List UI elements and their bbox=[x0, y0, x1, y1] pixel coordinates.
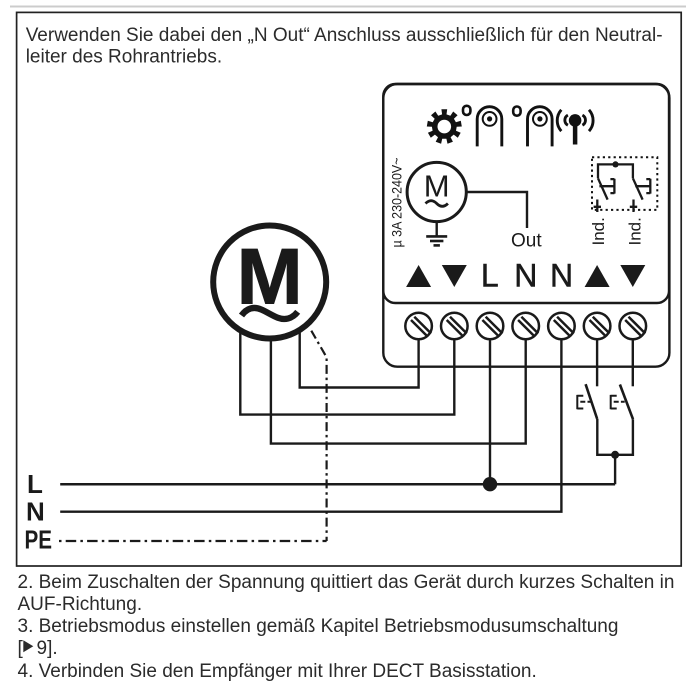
svg-text:leiter des Rohrantriebs.: leiter des Rohrantriebs. bbox=[26, 47, 222, 68]
svg-text:N: N bbox=[514, 258, 537, 294]
svg-text:N: N bbox=[550, 258, 573, 294]
svg-text:4. Verbinden Sie den Empfänger: 4. Verbinden Sie den Empfänger mit Ihrer… bbox=[18, 661, 537, 682]
svg-text:L: L bbox=[27, 469, 43, 499]
svg-text:Out: Out bbox=[511, 230, 542, 251]
svg-text:N: N bbox=[26, 497, 45, 527]
svg-text:3. Betriebsmodus einstellen ge: 3. Betriebsmodus einstellen gemäß Kapite… bbox=[18, 616, 619, 637]
svg-text:PE: PE bbox=[25, 525, 53, 555]
svg-text:L: L bbox=[481, 258, 499, 294]
svg-text:2. Beim Zuschalten der Spannun: 2. Beim Zuschalten der Spannung quittier… bbox=[18, 572, 675, 593]
svg-text:AUF-Richtung.: AUF-Richtung. bbox=[18, 594, 143, 615]
svg-text:µ 3A 230-240V~: µ 3A 230-240V~ bbox=[390, 157, 405, 247]
svg-text:[: [ bbox=[18, 638, 24, 659]
svg-text:Ind.: Ind. bbox=[625, 217, 644, 245]
svg-text:Verwenden Sie dabei den „N Out: Verwenden Sie dabei den „N Out“ Anschlus… bbox=[26, 25, 663, 46]
svg-text:M: M bbox=[424, 168, 450, 203]
svg-text:Ind.: Ind. bbox=[589, 217, 608, 245]
svg-text:9].: 9]. bbox=[37, 638, 58, 659]
